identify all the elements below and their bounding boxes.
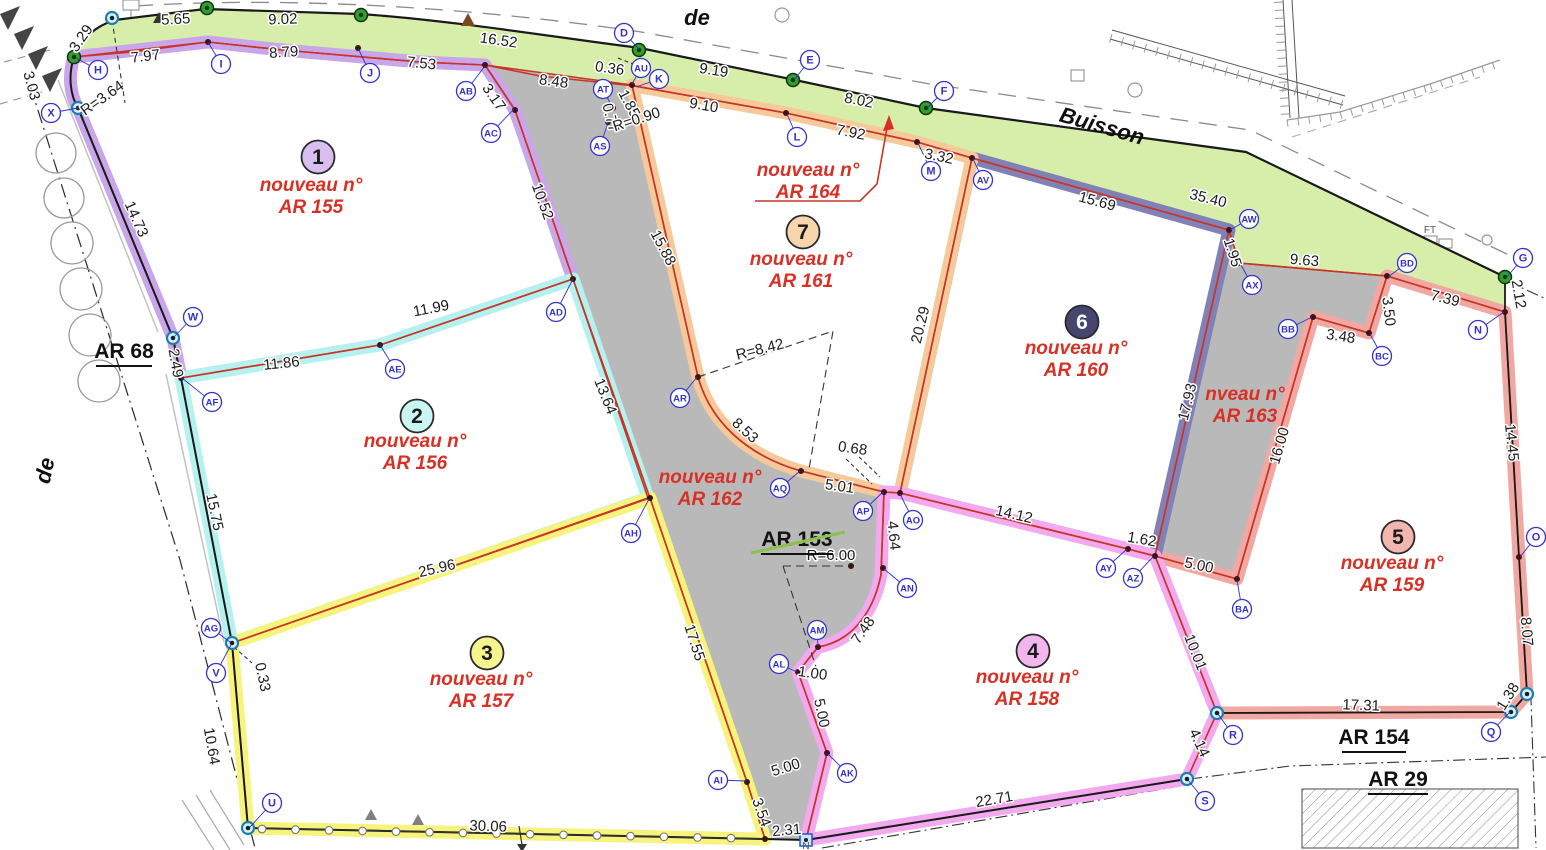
svg-text:AU: AU [634,64,648,75]
tick [1276,42,1285,43]
fence-post [459,829,467,837]
svg-text:5: 5 [1392,526,1404,549]
svg-text:AN: AN [900,584,914,595]
svg-text:K: K [655,74,663,86]
vertex-dot [798,468,804,474]
svg-text:AO: AO [906,516,920,527]
svg-text:nouveau n°: nouveau n° [1025,338,1128,359]
vertex-dot [969,155,975,161]
measurement-label: 9.02 [268,10,298,28]
svg-text:AR 160: AR 160 [1043,360,1109,381]
measurement-label: 4.64 [883,520,903,551]
tick [1281,114,1290,115]
svg-text:AR 156: AR 156 [382,453,448,474]
svg-text:AR 163: AR 163 [1212,406,1278,427]
fence-post [593,832,601,840]
measurement-label: 2.12 [1508,278,1530,310]
tick [1492,63,1494,70]
vertex-dot [783,110,789,116]
tick [1393,96,1395,103]
svg-text:AR 154: AR 154 [1338,726,1410,749]
vertex-dot [1502,309,1508,315]
svg-text:AR 159: AR 159 [1359,575,1425,596]
tick [1278,66,1287,67]
fence-post [627,832,635,840]
tick [1451,77,1453,84]
area-label-AR29: AR 29 [1368,768,1428,794]
talus-ticks [1110,2,1495,127]
vertex-dot [1152,553,1158,559]
tick [1133,41,1135,50]
vertex-dot [1310,314,1316,320]
cadastral-plan: HXIJABACADAEAFWAGVUAHAIAKALAMANAOAPAQARA… [0,0,1546,850]
fence-post [392,828,400,836]
tick [1361,105,1363,112]
point-label-E: E [794,51,820,81]
vertex-dot [762,836,768,842]
tick [1372,102,1374,109]
svg-text:AT: AT [597,85,609,96]
fence-post [258,825,266,833]
svg-text:BC: BC [1375,352,1389,363]
point-label-S: S [1188,780,1215,811]
teal-survey-marker [242,822,254,834]
svg-text:AY: AY [1100,564,1113,575]
tick [1382,99,1384,106]
tick [1472,70,1474,77]
tick [1279,82,1288,83]
tick [1430,84,1432,91]
area-label-AR68: AR 68 [94,340,154,366]
tick [1331,113,1332,120]
svg-text:AB: AB [459,87,473,98]
tick [1274,2,1283,3]
street-name: de [30,455,60,485]
tick [1414,89,1416,96]
tick [1461,73,1463,80]
fence-post [560,831,568,839]
down-arrow-head [517,844,527,850]
vertex-dot [1516,554,1522,560]
fence-post [694,834,702,842]
tick [1277,50,1286,51]
point-label-G: G [1506,249,1533,279]
talus-dash [1292,77,1480,137]
svg-text:nouveau n°: nouveau n° [659,467,762,488]
fence-post [526,830,534,838]
svg-text:AW: AW [1241,215,1256,226]
vertex-dot [881,489,887,495]
teal-survey-marker [106,12,118,24]
tick [1440,80,1442,87]
tick [1276,34,1285,35]
tick [1279,90,1288,91]
svg-text:S: S [1201,796,1208,808]
hatched-building [1302,789,1518,848]
svg-text:AR 162: AR 162 [677,489,743,510]
svg-text:L: L [794,132,801,144]
svg-text:6: 6 [1076,311,1088,334]
svg-text:N: N [1474,325,1482,337]
svg-text:AP: AP [856,507,870,518]
measurement-label: 10.64 [200,726,223,766]
fence-post [426,828,434,836]
svg-text:AX: AX [1245,281,1259,292]
svg-text:AR 157: AR 157 [448,691,515,712]
teal-survey-marker [1211,707,1223,719]
svg-text:AD: AD [549,308,563,319]
svg-text:nouveau n°: nouveau n° [364,431,467,452]
svg-text:F: F [941,86,948,98]
talus-line [1287,60,1500,120]
measurement-label: 8.79 [269,43,299,62]
svg-text:D: D [620,28,628,40]
svg-text:2: 2 [411,405,423,428]
measurement-label: 2.49 [165,347,187,379]
svg-text:nouveau n°: nouveau n° [976,667,1079,688]
brown-triangle [461,13,475,26]
decor-circle [775,8,789,22]
svg-text:nouveau n°: nouveau n° [1341,553,1444,574]
misc-label: N [802,841,809,850]
vertex-dot [897,490,903,496]
svg-text:W: W [188,312,199,324]
svg-text:M: M [926,166,935,178]
svg-text:H: H [94,65,102,77]
svg-text:R: R [1229,730,1237,742]
svg-text:AE: AE [388,365,401,376]
svg-text:AG: AG [204,624,218,635]
svg-text:BD: BD [1400,259,1414,270]
point-label-F: F [927,82,954,109]
vertex-dot [695,374,701,380]
fence-post [292,826,300,834]
svg-text:AR 29: AR 29 [1368,768,1428,791]
teal-survey-marker [1181,773,1193,785]
tick [1156,47,1158,56]
svg-text:AV: AV [977,176,990,187]
svg-text:3: 3 [481,642,493,665]
cadastral-plan-svg: HXIJABACADAEAFWAGVUAHAIAKALAMANAOAPAQARA… [0,0,1546,850]
green-survey-marker [633,44,646,57]
decor-box [1071,70,1084,81]
tick [1275,26,1284,27]
svg-text:AK: AK [840,769,854,780]
measurement-label: 8.07 [1517,616,1536,647]
svg-text:O: O [1532,532,1541,544]
svg-text:nouveau n°: nouveau n° [260,175,363,196]
svg-text:nouveau n°: nouveau n° [757,160,860,181]
svg-text:AZ: AZ [1127,574,1140,585]
vertex-dot [744,779,750,785]
road-label-AR163: nveau n°AR 163 [1205,384,1285,427]
vertex-dot [482,62,488,68]
svg-text:AF: AF [206,398,219,409]
svg-text:nouveau n°: nouveau n° [430,669,533,690]
vertex-dot [1226,227,1232,233]
svg-text:nouveau n°: nouveau n° [750,249,853,270]
svg-text:V: V [212,668,220,680]
measurement-label: 3.50 [1378,296,1398,327]
svg-text:E: E [806,55,813,67]
svg-text:Q: Q [1487,727,1496,739]
svg-text:BB: BB [1281,325,1295,336]
svg-text:AR 155: AR 155 [278,197,344,218]
measurement-label: 7.97 [130,46,161,66]
svg-text:X: X [47,108,55,120]
measurement-label: 2.31 [771,821,802,840]
area-label-AR153: AR 153 [751,528,845,554]
teal-survey-marker [1521,688,1533,700]
tick [1482,66,1484,73]
svg-text:G: G [1519,253,1528,265]
tick [1309,117,1310,124]
green-survey-marker [201,2,214,15]
vertex-dot [647,495,653,501]
fence-post [727,834,735,842]
green-survey-marker [920,102,933,115]
tick [1280,98,1289,99]
svg-text:AC: AC [484,129,498,140]
tick [1110,34,1112,43]
tick [1351,109,1353,116]
vertex-dot [1125,546,1131,552]
svg-text:AR 68: AR 68 [94,340,154,363]
svg-text:AL: AL [773,660,786,671]
tick [1278,74,1287,75]
tick [1275,10,1284,11]
fence-post [660,833,668,841]
chain-band [1283,0,1299,118]
svg-text:AR 164: AR 164 [775,182,841,203]
decor-circle [1128,83,1142,97]
svg-text:I: I [219,59,222,71]
tick [1277,58,1286,59]
svg-text:AR 161: AR 161 [768,271,833,292]
svg-text:AM: AM [810,626,825,637]
tick [1424,86,1426,93]
svg-text:AH: AH [624,529,638,540]
measurement-label: 7.53 [406,54,437,74]
teal-survey-marker [226,637,238,649]
svg-text:AQ: AQ [773,484,787,495]
measurement-label: 17.31 [1342,696,1380,714]
vertex-dot [914,139,920,145]
svg-text:AR 158: AR 158 [994,689,1060,710]
tick [1287,120,1288,127]
tick [1121,37,1123,46]
svg-text:AS: AS [593,142,606,153]
measurement-label: 30.06 [469,817,507,835]
fence-post [359,827,367,835]
measurement-label: 3.03 [19,70,43,103]
misc-label: FT [1424,225,1436,236]
svg-text:4: 4 [1027,640,1039,663]
tick [1275,18,1284,19]
street-name: de [684,5,710,30]
svg-text:nveau n°: nveau n° [1205,384,1285,405]
tick [1298,118,1299,125]
area-label-AR154: AR 154 [1338,726,1410,752]
fence-post [325,827,333,835]
svg-text:J: J [367,68,373,80]
svg-text:1: 1 [312,146,324,169]
decor-circle [1482,235,1492,245]
svg-text:AI: AI [713,776,723,787]
tick [1403,92,1405,99]
measurement-label: 9.63 [1289,251,1320,270]
svg-text:U: U [268,798,276,810]
tick [1280,106,1289,107]
tick [1340,112,1342,119]
tick [1144,44,1146,53]
green-survey-marker [355,9,368,22]
tick [1320,115,1321,122]
measurement-label: 5.65 [161,10,191,29]
svg-text:7: 7 [797,221,809,244]
svg-text:BA: BA [1235,605,1249,616]
svg-text:AR: AR [673,394,687,405]
bottomleft-hatch [182,790,244,850]
